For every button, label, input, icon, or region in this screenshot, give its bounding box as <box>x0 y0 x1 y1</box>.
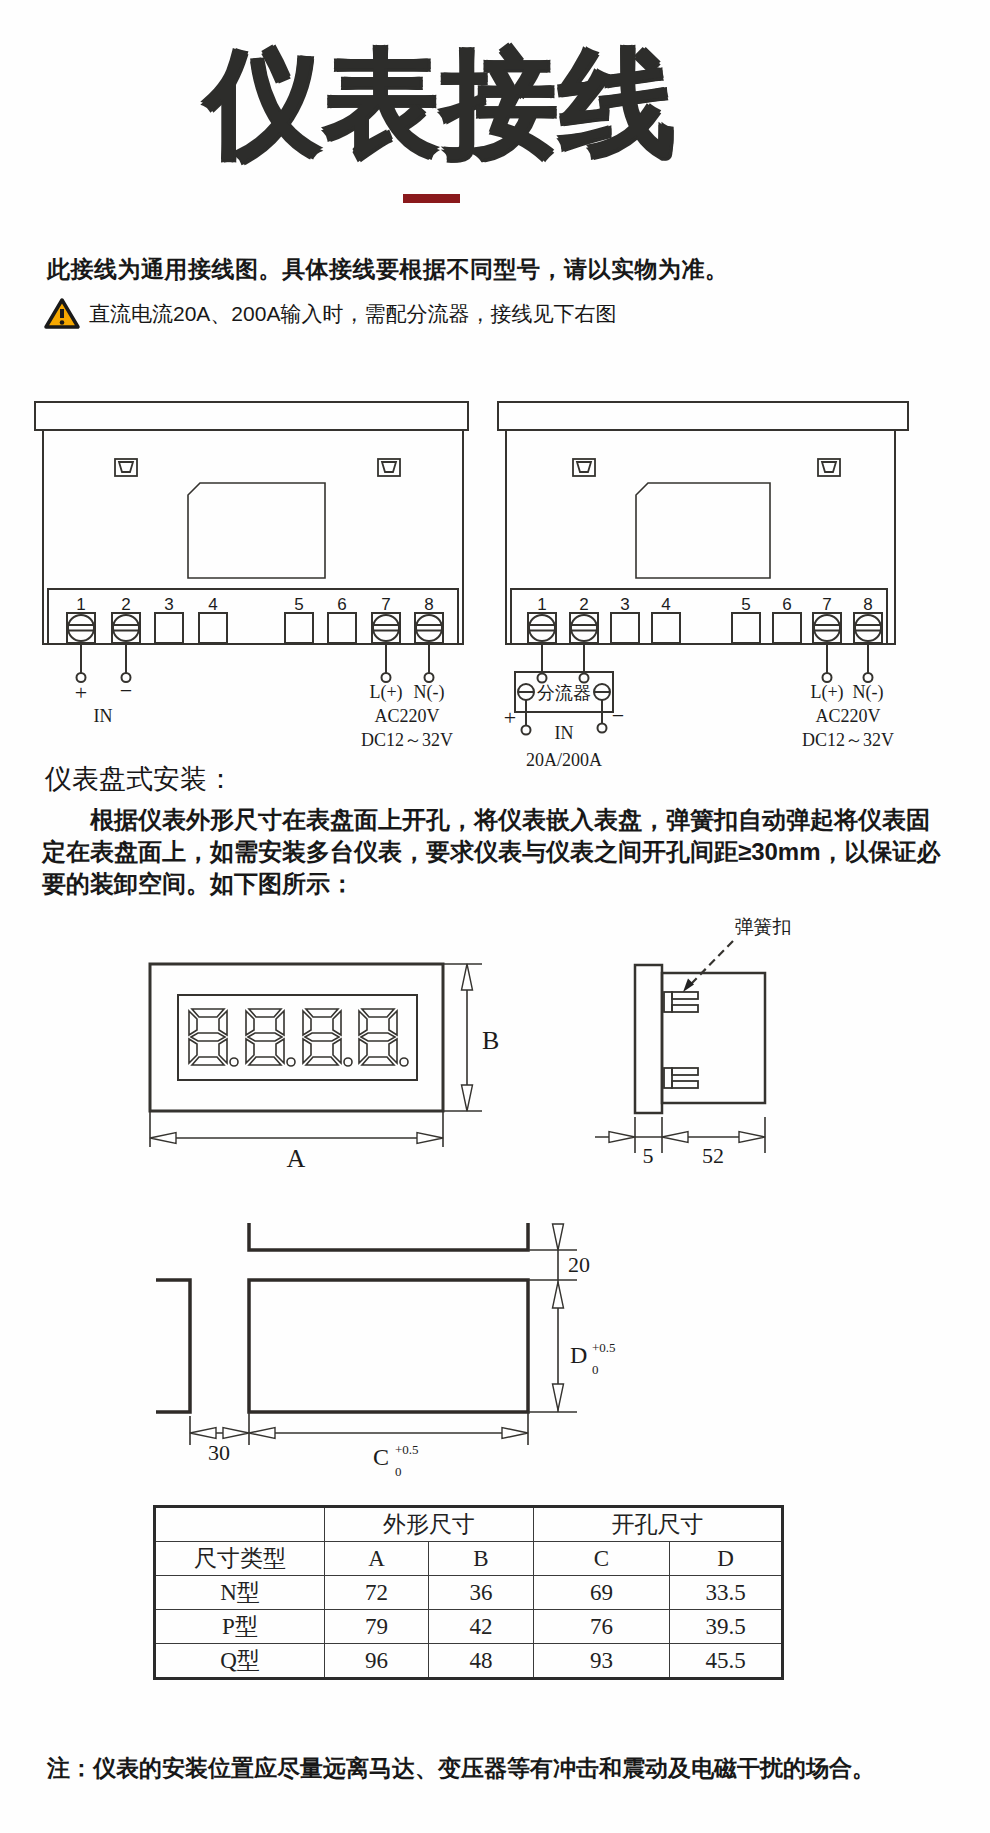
dim-label-5: 5 <box>643 1143 654 1168</box>
neutral-label: N(-) <box>414 682 445 703</box>
warning-row: 直流电流20A、200A输入时，需配分流器，接线见下右图 <box>44 297 616 330</box>
cell-b: 36 <box>429 1576 534 1610</box>
dimension-arrow <box>249 1428 275 1439</box>
cell-b: 42 <box>429 1610 534 1644</box>
seven-segment-digit <box>359 1009 408 1066</box>
live-label: L(+) <box>369 682 402 703</box>
seven-segment-digit <box>246 1009 295 1066</box>
wiring-diagram-shunt: 1 2 3 4 5 6 7 8 <box>498 395 910 775</box>
side-view: 弹簧扣 <box>635 916 792 1113</box>
spring-clip-label: 弹簧扣 <box>735 916 792 937</box>
terminal-numbers: 1 2 3 4 5 6 7 8 <box>537 595 872 614</box>
dimension-B: B <box>443 964 499 1111</box>
terminals <box>528 613 882 643</box>
terminal-number: 6 <box>337 595 346 614</box>
dim-label-30: 30 <box>208 1440 230 1465</box>
dim-label-B: B <box>482 1026 499 1055</box>
dimension-arrow <box>553 1282 564 1308</box>
terminal-number: 1 <box>537 595 546 614</box>
seven-segment-digit <box>189 1009 238 1066</box>
col-header-type: 尺寸类型 <box>155 1542 325 1576</box>
manual-page: 仪表接线 此接线为通用接线图。具体接线要根据不同型号，请以实物为准。 直流电流2… <box>0 0 990 1833</box>
group-header-outline: 外形尺寸 <box>325 1507 534 1542</box>
terminal-number: 8 <box>863 595 872 614</box>
dim-label-A: A <box>287 1144 306 1173</box>
cell-type: Q型 <box>155 1644 325 1679</box>
dimension-arrow <box>462 1085 473 1111</box>
in-label: IN <box>94 706 113 726</box>
wire-end <box>598 724 607 733</box>
terminal-number: 7 <box>822 595 831 614</box>
terminal-number: 6 <box>782 595 791 614</box>
cell-d: 45.5 <box>670 1644 783 1679</box>
cell-b: 48 <box>429 1644 534 1679</box>
plus-label: + <box>75 680 87 705</box>
group-header-cutout: 开孔尺寸 <box>534 1507 783 1542</box>
wire-end <box>580 674 589 683</box>
leader-arrowhead <box>683 979 694 993</box>
mounting-clip-icon <box>115 459 137 476</box>
meter-rear-outline <box>35 402 468 644</box>
shunt-circuit: 分流器 + − IN 20A/200A <box>504 643 624 770</box>
terminal-plain <box>199 613 227 643</box>
ac-supply-label: AC220V <box>374 706 439 726</box>
wiring-notice-text: 此接线为通用接线图。具体接线要根据不同型号，请以实物为准。 <box>47 254 729 285</box>
install-section-heading: 仪表盘式安装： <box>45 761 234 797</box>
dimension-arrow <box>662 1132 688 1143</box>
terminal-number: 1 <box>76 595 85 614</box>
left-cutout-partial <box>156 1280 190 1412</box>
dim-label-20: 20 <box>568 1252 590 1277</box>
table-row: N型 72 36 69 33.5 <box>155 1576 783 1610</box>
dimension-30-C: 30 C +0.5 0 <box>190 1412 528 1479</box>
terminal-number: 3 <box>164 595 173 614</box>
warning-text: 直流电流20A、200A输入时，需配分流器，接线见下右图 <box>89 300 616 328</box>
dimension-arrow <box>609 1132 635 1143</box>
cell-d: 39.5 <box>670 1610 783 1644</box>
dimension-arrow <box>190 1428 216 1439</box>
terminal-plain <box>285 613 313 643</box>
terminal-number: 2 <box>579 595 588 614</box>
meter-dimension-views: B A 弹簧扣 <box>130 885 810 1185</box>
display-window <box>178 995 417 1080</box>
cell-c: 69 <box>534 1576 670 1610</box>
shunt-label: 分流器 <box>537 683 591 703</box>
dimension-arrow <box>150 1133 176 1144</box>
neutral-label: N(-) <box>853 682 884 703</box>
dimension-arrow <box>502 1428 528 1439</box>
table-row: Q型 96 48 93 45.5 <box>155 1644 783 1679</box>
wire-end <box>522 726 531 735</box>
wires <box>77 643 434 682</box>
terminal-plain <box>611 613 639 643</box>
dim-label-D: D <box>570 1342 587 1368</box>
in-label: IN <box>555 723 574 743</box>
cell-c: 76 <box>534 1610 670 1644</box>
dimension-arrow <box>462 964 473 990</box>
ac-supply-label: AC220V <box>815 706 880 726</box>
shunt-rating-label: 20A/200A <box>526 750 602 770</box>
terminal-screw <box>415 613 443 643</box>
col-header-c: C <box>534 1542 670 1576</box>
mounting-clip-icon <box>378 459 400 476</box>
terminal-screw <box>570 613 598 643</box>
bottom-note: 注：仪表的安装位置应尽量远离马达、变压器等有冲击和震动及电磁干扰的场合。 <box>47 1753 875 1784</box>
dc-supply-label: DC12～32V <box>802 730 894 750</box>
terminals <box>67 613 443 643</box>
dimension-table: 外形尺寸 开孔尺寸 尺寸类型 A B C D N型 72 36 69 33.5 … <box>153 1505 784 1680</box>
terminal-number: 4 <box>661 595 670 614</box>
warning-triangle-icon <box>44 297 80 330</box>
meter-rear-outline <box>498 402 908 644</box>
terminal-screw <box>813 613 841 643</box>
wire <box>382 643 391 682</box>
terminal-plain <box>773 613 801 643</box>
wire <box>864 643 873 682</box>
wire <box>77 643 86 682</box>
supply-wires: L(+) N(-) AC220V DC12～32V <box>802 643 894 750</box>
dimension-depth: 5 52 <box>595 1117 765 1168</box>
cell-a: 79 <box>325 1610 429 1644</box>
dimension-20-D: 20 D +0.5 0 <box>528 1224 616 1412</box>
cell-type: P型 <box>155 1610 325 1644</box>
col-header-b: B <box>429 1542 534 1576</box>
dimension-arrow <box>417 1133 443 1144</box>
wire <box>823 643 832 682</box>
wire <box>425 643 434 682</box>
dimension-arrow <box>553 1384 564 1410</box>
label-plate <box>636 483 770 578</box>
terminal-number: 5 <box>741 595 750 614</box>
terminal-number: 2 <box>121 595 130 614</box>
terminal-number: 7 <box>381 595 390 614</box>
table-row-groups: 外形尺寸 开孔尺寸 <box>155 1507 783 1542</box>
title-accent-divider <box>403 194 460 203</box>
dc-supply-label: DC12～32V <box>361 730 453 750</box>
terminal-screw <box>67 613 95 643</box>
table-row-headers: 尺寸类型 A B C D <box>155 1542 783 1576</box>
terminal-screw <box>528 613 556 643</box>
meter-bezel <box>35 402 468 430</box>
upper-cutout-partial <box>249 1223 528 1250</box>
dim-label-C: C <box>373 1444 389 1470</box>
col-header-a: A <box>325 1542 429 1576</box>
cutout-outlines <box>156 1223 528 1412</box>
dim-tolerance-sup: +0.5 <box>395 1442 419 1457</box>
terminal-plain <box>652 613 680 643</box>
terminal-plain <box>155 613 183 643</box>
cell-a: 72 <box>325 1576 429 1610</box>
cell-type: N型 <box>155 1576 325 1610</box>
wire <box>122 643 131 682</box>
cell-a: 96 <box>325 1644 429 1679</box>
leader-line <box>690 941 733 985</box>
plus-label: + <box>504 705 516 730</box>
spring-clip-icon <box>664 992 698 1012</box>
wiring-diagram-direct: 1 2 3 4 5 6 7 8 + − IN <box>33 395 475 755</box>
dim-tolerance-sub: 0 <box>592 1362 599 1377</box>
main-cutout <box>249 1280 528 1412</box>
front-view <box>150 964 443 1111</box>
terminal-screw <box>372 613 400 643</box>
dimension-arrow <box>739 1132 765 1143</box>
cell-c: 93 <box>534 1644 670 1679</box>
meter-bezel <box>498 402 908 430</box>
dim-tolerance-sup: +0.5 <box>592 1340 616 1355</box>
minus-label: − <box>120 678 132 703</box>
col-header-d: D <box>670 1542 783 1576</box>
dimension-A: A <box>150 1111 443 1173</box>
terminal-numbers: 1 2 3 4 5 6 7 8 <box>76 595 433 614</box>
spring-clip-icon <box>664 1068 698 1088</box>
wire-end <box>538 674 547 683</box>
terminal-plain <box>328 613 356 643</box>
wire-labels: + − IN L(+) N(-) AC220V DC12～32V <box>75 678 453 750</box>
mounting-clip-icon <box>818 459 840 476</box>
table-row: P型 79 42 76 39.5 <box>155 1610 783 1644</box>
live-label: L(+) <box>810 682 843 703</box>
terminal-screw <box>112 613 140 643</box>
mounting-clip-icon <box>573 459 595 476</box>
cell-d: 33.5 <box>670 1576 783 1610</box>
terminal-screw <box>854 613 882 643</box>
dim-tolerance-sub: 0 <box>395 1464 402 1479</box>
dim-label-52: 52 <box>702 1143 724 1168</box>
page-title: 仪表接线 <box>0 36 880 169</box>
dimension-arrow <box>553 1224 564 1250</box>
dimension-arrow <box>223 1428 249 1439</box>
terminal-number: 5 <box>294 595 303 614</box>
seven-segment-digit <box>303 1009 352 1066</box>
minus-label: − <box>612 703 624 728</box>
side-bezel <box>635 965 662 1113</box>
terminal-number: 3 <box>620 595 629 614</box>
panel-cutout-diagram: 20 D +0.5 0 30 C +0.5 0 <box>140 1220 610 1480</box>
label-plate <box>188 483 325 578</box>
empty-cell <box>155 1507 325 1542</box>
terminal-plain <box>732 613 760 643</box>
terminal-number: 8 <box>424 595 433 614</box>
terminal-number: 4 <box>208 595 217 614</box>
front-panel-outline <box>150 964 443 1111</box>
